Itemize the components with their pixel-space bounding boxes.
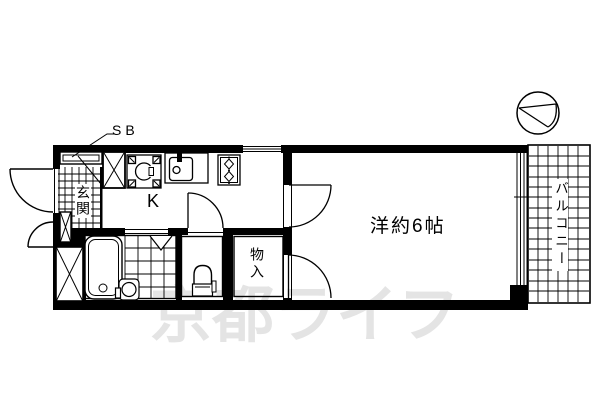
shoe-box-label: SB	[112, 122, 139, 138]
kitchen-window	[243, 147, 281, 152]
kitchen-label: K	[147, 191, 159, 212]
toilet-door-arc	[188, 193, 223, 228]
entrance-label: 玄関	[75, 184, 91, 218]
washer-pan-icon	[127, 155, 161, 188]
sink-icon	[165, 151, 208, 183]
compass-icon	[517, 92, 559, 134]
main-room-label: 洋約6帖	[370, 211, 446, 238]
toilet-icon	[193, 266, 217, 297]
pipe-space-small-x-box	[60, 212, 71, 242]
pillar-x-box	[103, 152, 125, 188]
closet-label: 物入	[248, 247, 265, 281]
wash-basin-icon	[116, 279, 140, 300]
closet-door-arc	[288, 255, 331, 298]
stove-icon	[218, 155, 240, 185]
entrance-door-arc	[10, 169, 53, 247]
pipe-space-large-x-box	[56, 247, 83, 301]
shoe-box	[60, 152, 102, 164]
balcony-label: バルコニー	[552, 179, 568, 271]
kitchen-door-arc	[289, 185, 331, 227]
floorplan-image: 京都ライフ	[0, 0, 600, 400]
